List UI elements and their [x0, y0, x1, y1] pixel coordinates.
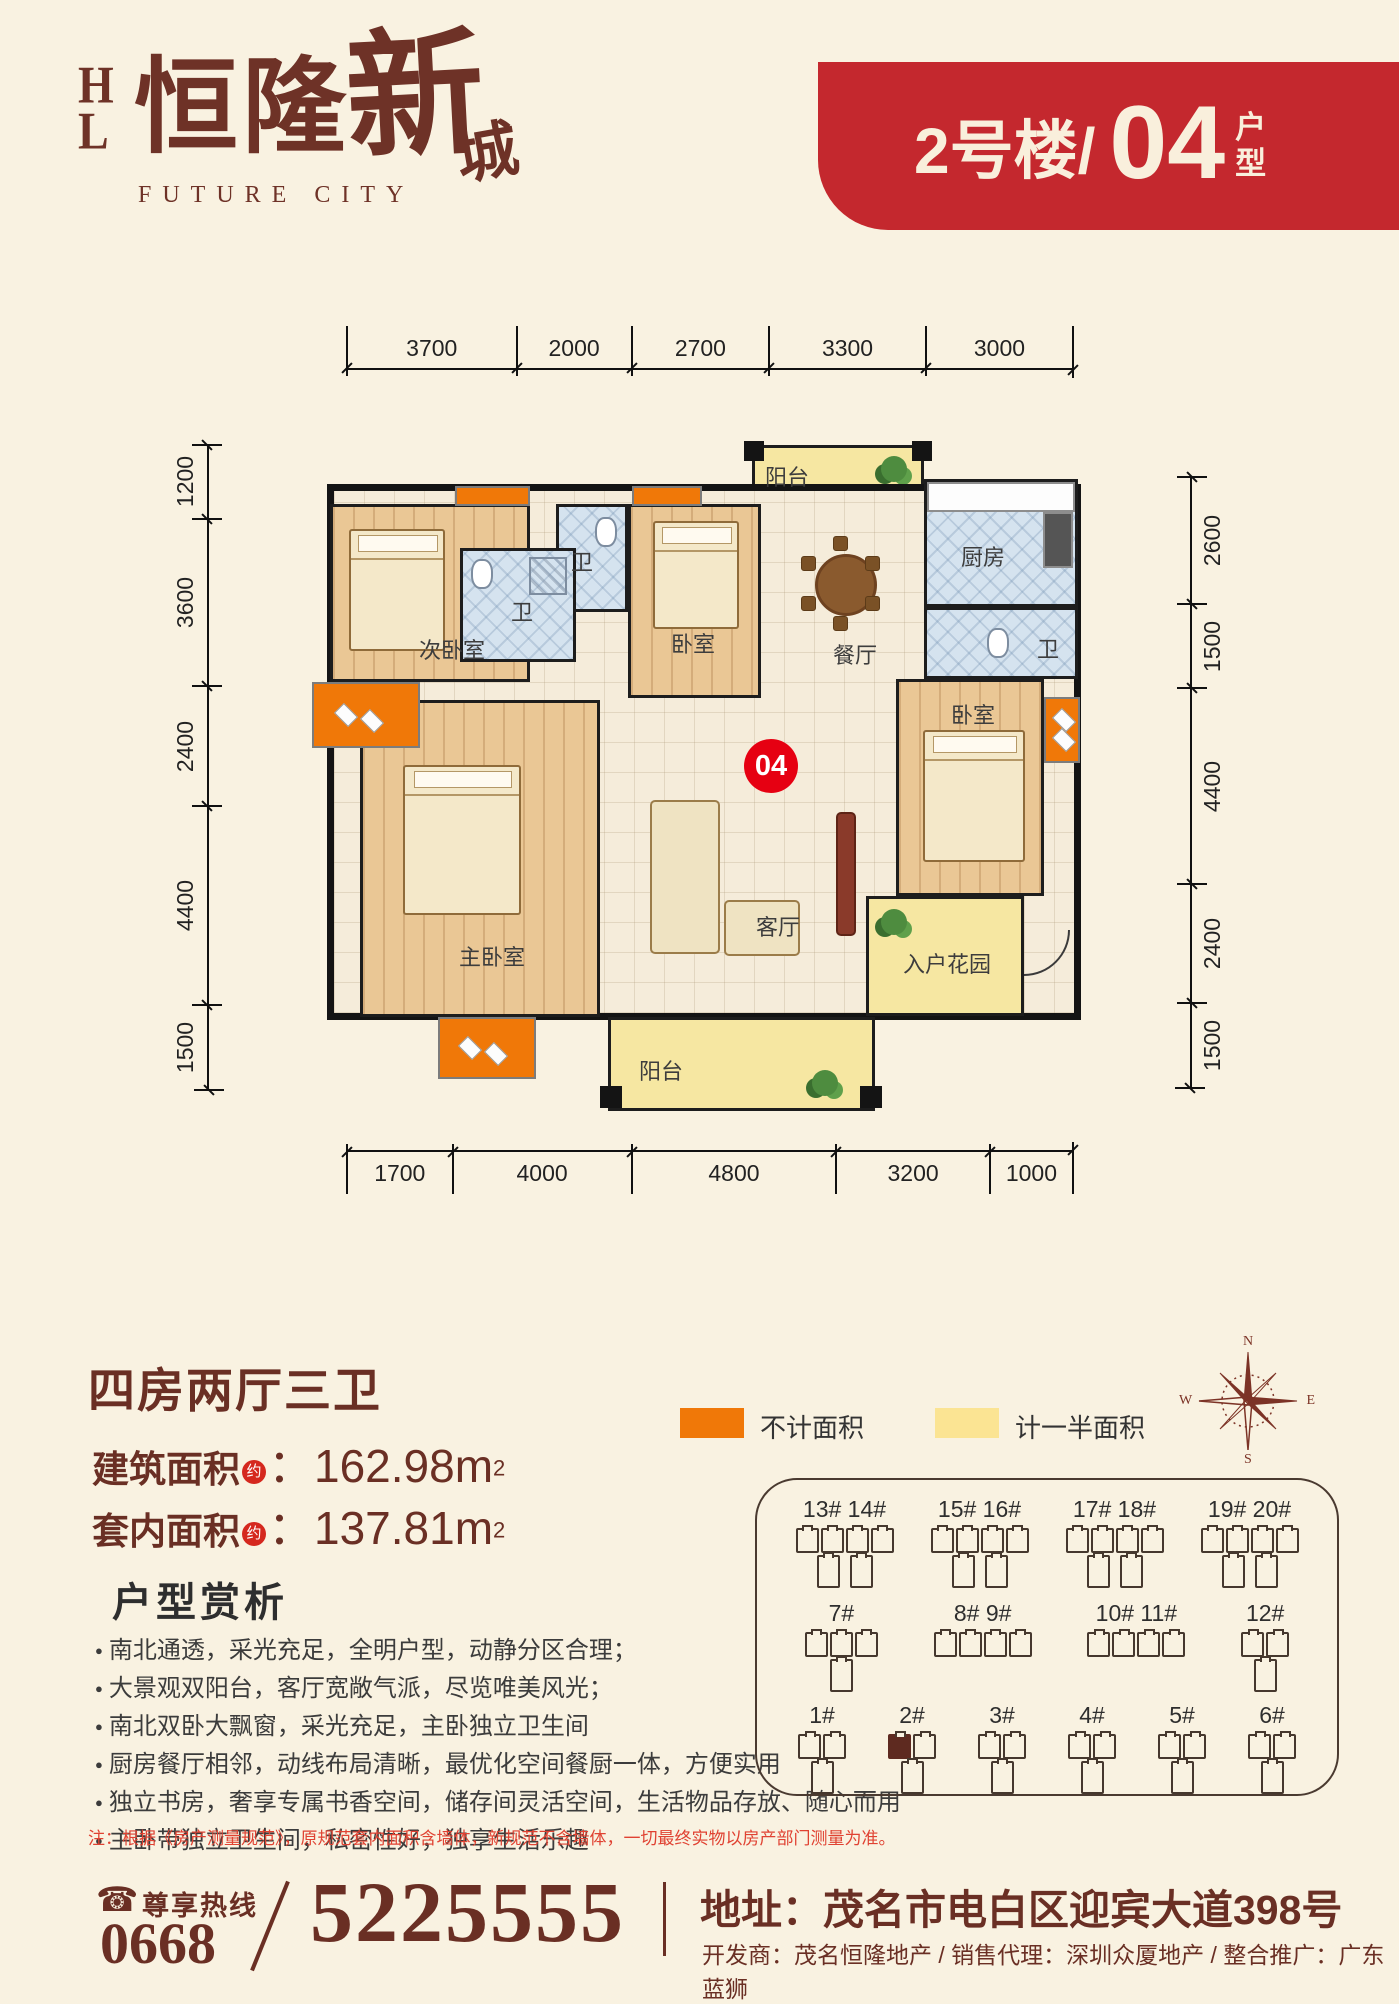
approx-seal: 约	[242, 1460, 266, 1484]
area-build-value: ：162.98m	[268, 1440, 493, 1492]
bay-window-orange	[632, 486, 702, 506]
building-footprint	[1003, 1734, 1026, 1759]
kitchen-counter	[927, 482, 1075, 512]
building-footprint	[817, 1555, 840, 1588]
shower-icon	[529, 557, 567, 595]
building-cluster: 17# 18#	[1066, 1496, 1164, 1588]
area-inner-row: 套内面积约：137.81m2	[92, 1492, 505, 1558]
building-footprint	[1093, 1734, 1116, 1759]
building-cluster-label: 5#	[1169, 1702, 1195, 1729]
legend-label-yellow: 计一半面积	[1015, 1408, 1145, 1445]
room-label-dining: 餐厅	[833, 638, 877, 670]
address-text: 地址：茂名市电白区迎宾大道398号	[700, 1876, 1342, 1936]
area-build-row: 建筑面积约：162.98m2	[92, 1430, 505, 1496]
hotline-area-code: 0668	[100, 1910, 216, 1977]
area-build-sup: 2	[493, 1456, 505, 1481]
compass-e: E	[1306, 1393, 1315, 1409]
building-footprint	[1248, 1734, 1271, 1759]
room-entry-garden: 入户花园	[866, 896, 1024, 1016]
compass-n: N	[1243, 1334, 1253, 1350]
building-footprint	[1116, 1528, 1139, 1553]
footer-divider	[663, 1882, 666, 1956]
sofa-icon	[650, 800, 720, 954]
toilet-icon	[987, 628, 1009, 658]
building-footprint	[931, 1528, 954, 1553]
tv-cabinet-icon	[836, 812, 856, 936]
compass-star	[1185, 1338, 1311, 1464]
floor-plan: 阳台 厨房 卫 次卧室 卫 卧室 餐厅 卫	[0, 0, 1399, 1200]
area-inner-sup: 2	[493, 1518, 505, 1543]
room-bedroom-top: 卧室	[628, 504, 761, 698]
building-footprint	[1068, 1734, 1091, 1759]
building-cluster-label: 7#	[829, 1600, 855, 1627]
building-footprint	[1112, 1632, 1135, 1657]
site-map-row: 7#8# 9#10# 11#12#	[777, 1600, 1317, 1692]
room-label-entry-garden: 入户花园	[903, 947, 991, 979]
building-footprint	[1254, 1659, 1277, 1692]
building-cluster: 6#	[1248, 1702, 1296, 1794]
room-label-balcony-top: 阳台	[765, 460, 809, 492]
building-cluster-label: 8# 9#	[954, 1600, 1012, 1627]
building-cluster-label: 19# 20#	[1208, 1496, 1291, 1523]
building-footprint	[1261, 1761, 1284, 1794]
room-label-bath-right: 卫	[1037, 632, 1059, 664]
building-cluster: 10# 11#	[1087, 1600, 1185, 1657]
building-footprint	[901, 1761, 924, 1794]
room-dining: 餐厅	[761, 500, 924, 682]
compass-s: S	[1244, 1452, 1252, 1468]
building-footprint	[821, 1528, 844, 1553]
analysis-heading: 户型赏析	[112, 1570, 288, 1628]
building-footprint	[1137, 1632, 1160, 1657]
bay-window-orange	[455, 486, 530, 506]
building-footprint	[846, 1528, 869, 1553]
building-footprint	[1009, 1632, 1032, 1657]
room-bedroom-right: 卧室	[896, 679, 1044, 896]
unit-number-badge: 04	[744, 739, 798, 793]
approx-seal: 约	[242, 1522, 266, 1546]
building-footprint	[984, 1632, 1007, 1657]
building-footprint	[830, 1659, 853, 1692]
area-inner-label: 套内面积	[92, 1511, 240, 1552]
building-cluster-label: 10# 11#	[1096, 1600, 1177, 1627]
building-footprint	[850, 1555, 873, 1588]
building-cluster-label: 13# 14#	[803, 1496, 886, 1523]
building-footprint	[1241, 1632, 1264, 1657]
building-cluster-label: 12#	[1246, 1600, 1284, 1627]
building-footprint	[978, 1734, 1001, 1759]
building-cluster: 19# 20#	[1201, 1496, 1299, 1588]
measurement-note: 注：根据《房产测量规范》，原规范套内面积含墙体，新规范不含墙体，一切最终实物以房…	[88, 1824, 896, 1849]
building-cluster: 12#	[1241, 1600, 1289, 1692]
room-label-bath-mid: 卫	[511, 595, 533, 627]
toilet-icon	[471, 559, 493, 589]
building-footprint	[1255, 1555, 1278, 1588]
layout-title: 四房两厅三卫	[88, 1352, 382, 1421]
building-footprint	[1162, 1632, 1185, 1657]
room-label-kitchen: 厨房	[961, 540, 1005, 572]
building-footprint	[830, 1632, 853, 1657]
building-cluster: 15# 16#	[931, 1496, 1029, 1588]
compass-w: W	[1179, 1393, 1192, 1409]
building-footprint	[1141, 1528, 1164, 1553]
room-label-bedroom-right: 卧室	[951, 698, 995, 730]
building-footprint	[1158, 1734, 1181, 1759]
building-footprint	[1183, 1734, 1206, 1759]
building-cluster: 8# 9#	[934, 1600, 1032, 1657]
building-footprint	[991, 1761, 1014, 1794]
building-footprint	[1226, 1528, 1249, 1553]
room-kitchen: 厨房	[924, 479, 1078, 607]
room-label-living: 客厅	[756, 910, 800, 942]
building-footprint	[1120, 1555, 1143, 1588]
compass-rose: N E S W	[1185, 1338, 1311, 1464]
building-footprint	[1266, 1632, 1289, 1657]
building-footprint	[959, 1632, 982, 1657]
room-label-bedroom-top: 卧室	[671, 627, 715, 659]
building-cluster-label: 4#	[1079, 1702, 1105, 1729]
building-cluster-label: 17# 18#	[1073, 1496, 1156, 1523]
plant-icon	[881, 456, 907, 482]
building-footprint	[1087, 1555, 1110, 1588]
bay-window-orange	[312, 682, 420, 748]
building-footprint	[1091, 1528, 1114, 1553]
hotline-number: 5225555	[310, 1862, 625, 1962]
site-map: 13# 14#15# 16#17# 18#19# 20# 7#8# 9#10# …	[755, 1478, 1339, 1796]
legend-swatch-yellow	[935, 1408, 999, 1438]
area-inner-value: ：137.81m	[268, 1502, 493, 1554]
building-footprint	[798, 1734, 821, 1759]
building-cluster: 5#	[1158, 1702, 1206, 1794]
building-cluster-label: 1#	[809, 1702, 835, 1729]
room-label-bedroom-second: 次卧室	[419, 633, 485, 665]
plant-icon	[812, 1070, 838, 1096]
bay-window-orange	[438, 1017, 536, 1079]
building-footprint	[1081, 1761, 1104, 1794]
poster-page: { "logo": { "monogram": "HL", "name_cn":…	[0, 0, 1399, 2000]
building-cluster: 13# 14#	[796, 1496, 894, 1588]
building-cluster: 3#	[978, 1702, 1026, 1794]
room-bath-right: 卫	[924, 607, 1078, 679]
building-footprint	[1276, 1528, 1299, 1553]
room-living: 客厅	[628, 682, 866, 1017]
building-footprint	[985, 1555, 1008, 1588]
room-label-bath-top: 卫	[571, 545, 593, 577]
building-footprint	[1222, 1555, 1245, 1588]
room-balcony-bottom: 阳台	[608, 1017, 875, 1111]
building-cluster-label: 2#	[899, 1702, 925, 1729]
room-label-master: 主卧室	[459, 940, 525, 972]
building-cluster: 7#	[805, 1600, 878, 1692]
building-cluster: 2#	[888, 1702, 936, 1794]
room-label-balcony-bottom: 阳台	[639, 1054, 683, 1086]
building-footprint	[952, 1555, 975, 1588]
building-footprint	[981, 1528, 1004, 1553]
building-footprint	[934, 1632, 957, 1657]
building-footprint	[823, 1734, 846, 1759]
bay-window-orange	[1044, 697, 1080, 763]
building-footprint	[913, 1734, 936, 1759]
kitchen-stove	[1043, 512, 1073, 568]
building-cluster: 4#	[1068, 1702, 1116, 1794]
bed-icon	[653, 521, 739, 629]
building-footprint	[871, 1528, 894, 1553]
credits-text: 开发商：茂名恒隆地产 / 销售代理：深圳众厦地产 / 整合推广：广东蓝狮	[702, 1936, 1399, 2004]
building-footprint	[1006, 1528, 1029, 1553]
building-footprint	[956, 1528, 979, 1553]
footer-bar: ☎ 尊享热线 0668 5225555 地址：茂名市电白区迎宾大道398号 开发…	[0, 1860, 1399, 2000]
plant-icon	[881, 909, 907, 935]
building-cluster-label: 6#	[1259, 1702, 1285, 1729]
building-footprint	[1171, 1761, 1194, 1794]
building-footprint	[888, 1734, 911, 1759]
bed-icon	[403, 765, 521, 915]
building-footprint	[855, 1632, 878, 1657]
legend-swatch-orange	[680, 1408, 744, 1438]
building-footprint	[796, 1528, 819, 1553]
legend-label-orange: 不计面积	[760, 1408, 864, 1445]
site-map-row: 13# 14#15# 16#17# 18#19# 20#	[777, 1496, 1317, 1588]
building-cluster: 1#	[798, 1702, 846, 1794]
building-footprint	[811, 1761, 834, 1794]
building-footprint	[1251, 1528, 1274, 1553]
area-build-label: 建筑面积	[92, 1449, 240, 1490]
building-cluster-label: 3#	[989, 1702, 1015, 1729]
building-cluster-label: 15# 16#	[938, 1496, 1021, 1523]
site-map-row: 1#2#3#4#5#6#	[777, 1702, 1317, 1794]
bed-icon	[923, 730, 1025, 862]
building-footprint	[1066, 1528, 1089, 1553]
building-footprint	[1273, 1734, 1296, 1759]
toilet-icon	[595, 517, 617, 547]
building-footprint	[1201, 1528, 1224, 1553]
building-footprint	[805, 1632, 828, 1657]
building-footprint	[1087, 1632, 1110, 1657]
